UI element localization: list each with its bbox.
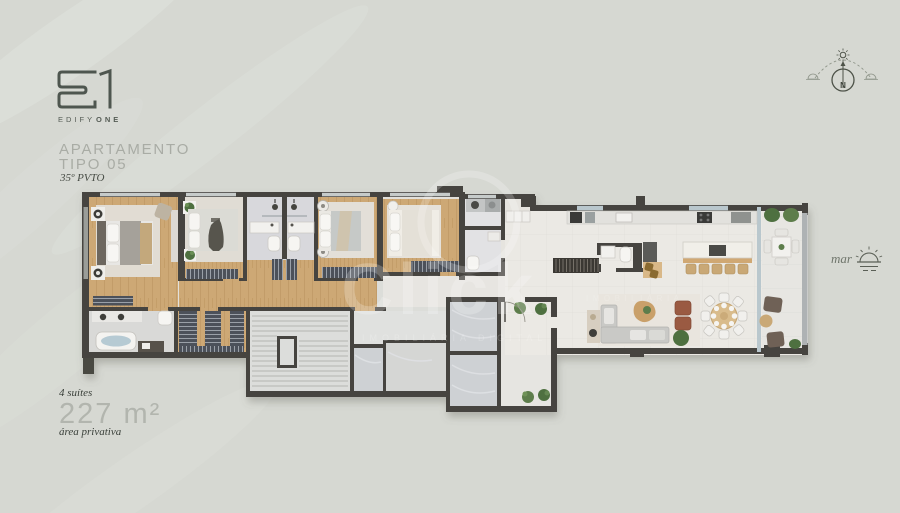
svg-text:IMOBILIÁRIA DIGITAL: IMOBILIÁRIA DIGITAL xyxy=(362,333,547,343)
svg-text:ONE: ONE xyxy=(96,115,121,124)
svg-text:área privativa: área privativa xyxy=(59,426,122,438)
svg-text:Click: Click xyxy=(341,250,538,330)
svg-text:EDIFY: EDIFY xyxy=(58,115,95,124)
svg-text:N: N xyxy=(840,81,846,90)
svg-text:IMOBILIÁRIA: IMOBILIÁRIA xyxy=(586,294,684,303)
svg-text:mar: mar xyxy=(831,251,853,266)
svg-text:TIPO 05: TIPO 05 xyxy=(59,156,127,173)
svg-text:35º PVTO: 35º PVTO xyxy=(59,172,105,184)
